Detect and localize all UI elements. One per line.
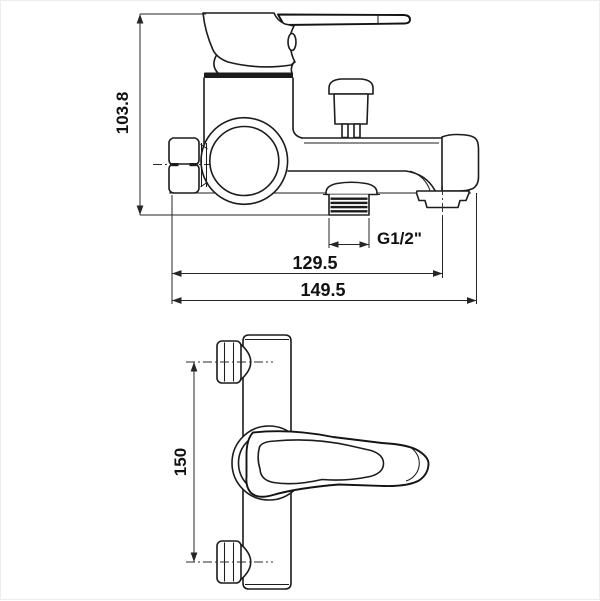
- arrowhead-left: [329, 241, 339, 248]
- dim-label-129-5: 129.5: [292, 253, 337, 273]
- escutcheon-inner-circle: [210, 127, 279, 196]
- cartridge-band: [204, 73, 293, 79]
- dimension-thread-g12: G1/2": [329, 218, 422, 248]
- arrowhead-left: [172, 297, 182, 304]
- valve-body-right-edge: [293, 78, 302, 138]
- dimension-150: 150: [171, 362, 197, 562]
- mixer-handle: [203, 13, 410, 78]
- diverter-cap: [329, 79, 373, 94]
- technical-drawing-page: 103.8 G1/2" 129.5 149.5: [0, 0, 600, 600]
- arrowhead-left: [172, 270, 182, 277]
- arrowhead-up: [191, 362, 198, 372]
- arrowhead-down: [137, 206, 144, 216]
- nut-upper-facet: [169, 138, 199, 165]
- handle-pivot-bump: [288, 34, 296, 51]
- handle-lever: [278, 15, 410, 26]
- diverter-knob: [329, 79, 373, 138]
- nut-lower-facet: [169, 164, 199, 193]
- arrowhead-down: [191, 553, 198, 563]
- bath-mixer-drawing: 103.8 G1/2" 129.5 149.5: [1, 1, 600, 601]
- escutcheon-flange: [201, 118, 288, 205]
- spout-end-cap: [442, 135, 479, 192]
- diverter-leg-right: [354, 124, 360, 138]
- spout-end: [417, 135, 479, 218]
- diverter-leg-left: [342, 124, 348, 138]
- front-view: 150: [171, 335, 429, 589]
- arrowhead-right: [360, 241, 370, 248]
- diverter-stem-body: [334, 94, 368, 124]
- side-view: 103.8 G1/2" 129.5 149.5: [113, 13, 479, 304]
- dimension-149-5: 149.5: [172, 193, 477, 304]
- nut-thread-mark-left: [172, 163, 179, 166]
- nut-thread-mark-right: [190, 163, 197, 166]
- front-handle: [232, 426, 429, 500]
- arrowhead-right: [433, 270, 443, 277]
- dim-label-150: 150: [171, 448, 190, 476]
- arrowhead-up: [137, 14, 144, 24]
- dim-label-g12: G1/2": [377, 229, 422, 248]
- outlet-dome-cap: [326, 182, 377, 194]
- shower-hose-outlet: [323, 182, 380, 215]
- dim-label-103-8: 103.8: [113, 92, 132, 135]
- arrowhead-right: [467, 297, 477, 304]
- handle-body: [203, 13, 295, 67]
- dim-label-149-5: 149.5: [300, 280, 345, 300]
